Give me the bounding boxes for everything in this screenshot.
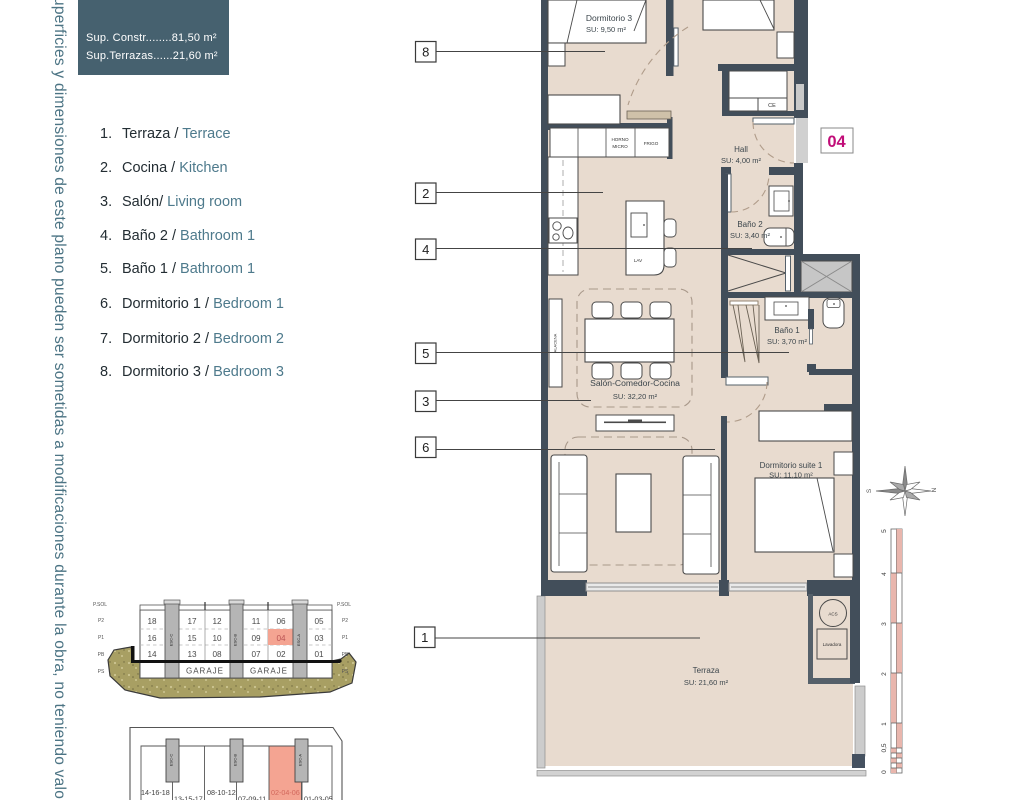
svg-text:P2: P2: [342, 618, 348, 624]
svg-text:4: 4: [881, 572, 888, 576]
svg-text:SU: 3,70 m²: SU: 3,70 m²: [767, 337, 808, 346]
svg-text:PB: PB: [342, 652, 349, 658]
svg-text:0,5: 0,5: [881, 743, 888, 752]
svg-text:Hall: Hall: [734, 145, 748, 154]
svg-text:S: S: [866, 488, 873, 493]
svg-text:13: 13: [187, 650, 197, 659]
svg-text:1: 1: [421, 630, 428, 645]
svg-text:17: 17: [187, 617, 197, 626]
svg-text:FRIGO: FRIGO: [644, 141, 659, 146]
svg-text:03: 03: [314, 634, 324, 643]
svg-text:ESC-C: ESC-C: [169, 754, 174, 767]
svg-text:ESC-B: ESC-B: [233, 634, 238, 647]
svg-text:08: 08: [212, 650, 222, 659]
svg-text:12: 12: [212, 617, 222, 626]
svg-text:P2: P2: [98, 618, 104, 624]
svg-text:6: 6: [422, 440, 429, 455]
svg-text:4: 4: [422, 242, 429, 257]
svg-text:ESC-A: ESC-A: [298, 754, 303, 767]
svg-text:15: 15: [187, 634, 197, 643]
svg-text:04: 04: [827, 133, 846, 151]
svg-text:14: 14: [147, 650, 157, 659]
svg-text:MICRO: MICRO: [612, 144, 628, 149]
svg-text:16: 16: [147, 634, 157, 643]
svg-text:CE: CE: [768, 103, 776, 109]
svg-text:09: 09: [251, 634, 261, 643]
svg-text:N: N: [931, 487, 938, 492]
svg-text:SU: 11,10 m²: SU: 11,10 m²: [769, 471, 813, 480]
svg-text:0: 0: [881, 770, 888, 774]
svg-text:SU: 3,40 m²: SU: 3,40 m²: [730, 231, 771, 240]
svg-text:Dormitorio 3: Dormitorio 3: [586, 13, 633, 23]
svg-text:PS: PS: [98, 669, 105, 675]
svg-text:PS: PS: [342, 669, 349, 675]
svg-text:P.SOL: P.SOL: [337, 602, 351, 608]
svg-text:P.SOL: P.SOL: [93, 602, 107, 608]
svg-text:SU: 9,50 m²: SU: 9,50 m²: [586, 25, 627, 34]
svg-text:LAV: LAV: [634, 258, 643, 263]
svg-text:18: 18: [147, 617, 157, 626]
svg-text:02: 02: [276, 650, 286, 659]
svg-text:11: 11: [252, 617, 261, 626]
svg-text:SU: 32,20 m²: SU: 32,20 m²: [613, 392, 658, 401]
svg-text:Baño 2: Baño 2: [737, 220, 763, 229]
svg-text:01-03-05: 01-03-05: [304, 795, 333, 800]
svg-text:Terraza: Terraza: [693, 666, 720, 675]
svg-text:06: 06: [276, 617, 286, 626]
svg-text:02-04-06: 02-04-06: [271, 788, 300, 797]
svg-text:01: 01: [314, 650, 324, 659]
svg-text:Dormitorio suite 1: Dormitorio suite 1: [760, 461, 823, 470]
svg-text:3: 3: [881, 622, 888, 626]
svg-text:HORNO: HORNO: [611, 137, 629, 142]
svg-text:1: 1: [881, 722, 888, 726]
svg-text:PB: PB: [98, 652, 105, 658]
svg-text:5: 5: [881, 529, 888, 533]
svg-text:SU: 21,60 m²: SU: 21,60 m²: [684, 678, 729, 687]
svg-text:ALACENA: ALACENA: [553, 333, 558, 352]
svg-text:P1: P1: [98, 635, 104, 641]
svg-text:07-09-11: 07-09-11: [238, 795, 266, 800]
svg-text:Baño 1: Baño 1: [774, 326, 800, 335]
svg-text:13-15-17: 13-15-17: [174, 795, 203, 800]
svg-text:GARAJE: GARAJE: [250, 667, 288, 676]
svg-text:GARAJE: GARAJE: [186, 667, 224, 676]
svg-text:P1: P1: [342, 635, 348, 641]
svg-text:10: 10: [212, 634, 222, 643]
svg-text:14-16-18: 14-16-18: [141, 788, 170, 797]
svg-text:ESC-C: ESC-C: [169, 634, 174, 647]
svg-text:ACS: ACS: [828, 612, 837, 617]
svg-text:SU: 4,00 m²: SU: 4,00 m²: [721, 156, 762, 165]
svg-text:05: 05: [314, 617, 324, 626]
svg-text:04: 04: [276, 634, 286, 643]
svg-text:5: 5: [422, 346, 429, 361]
svg-text:8: 8: [422, 45, 429, 60]
svg-text:2: 2: [881, 672, 888, 676]
svg-text:ESC-A: ESC-A: [296, 634, 301, 647]
svg-text:08-10-12: 08-10-12: [207, 788, 236, 797]
svg-text:Salón-Comedor-Cocina: Salón-Comedor-Cocina: [590, 378, 680, 388]
svg-text:2: 2: [422, 186, 429, 201]
svg-text:3: 3: [422, 394, 429, 409]
svg-text:07: 07: [251, 650, 261, 659]
svg-text:Lavadora: Lavadora: [823, 642, 842, 647]
svg-text:ESC-B: ESC-B: [233, 754, 238, 767]
